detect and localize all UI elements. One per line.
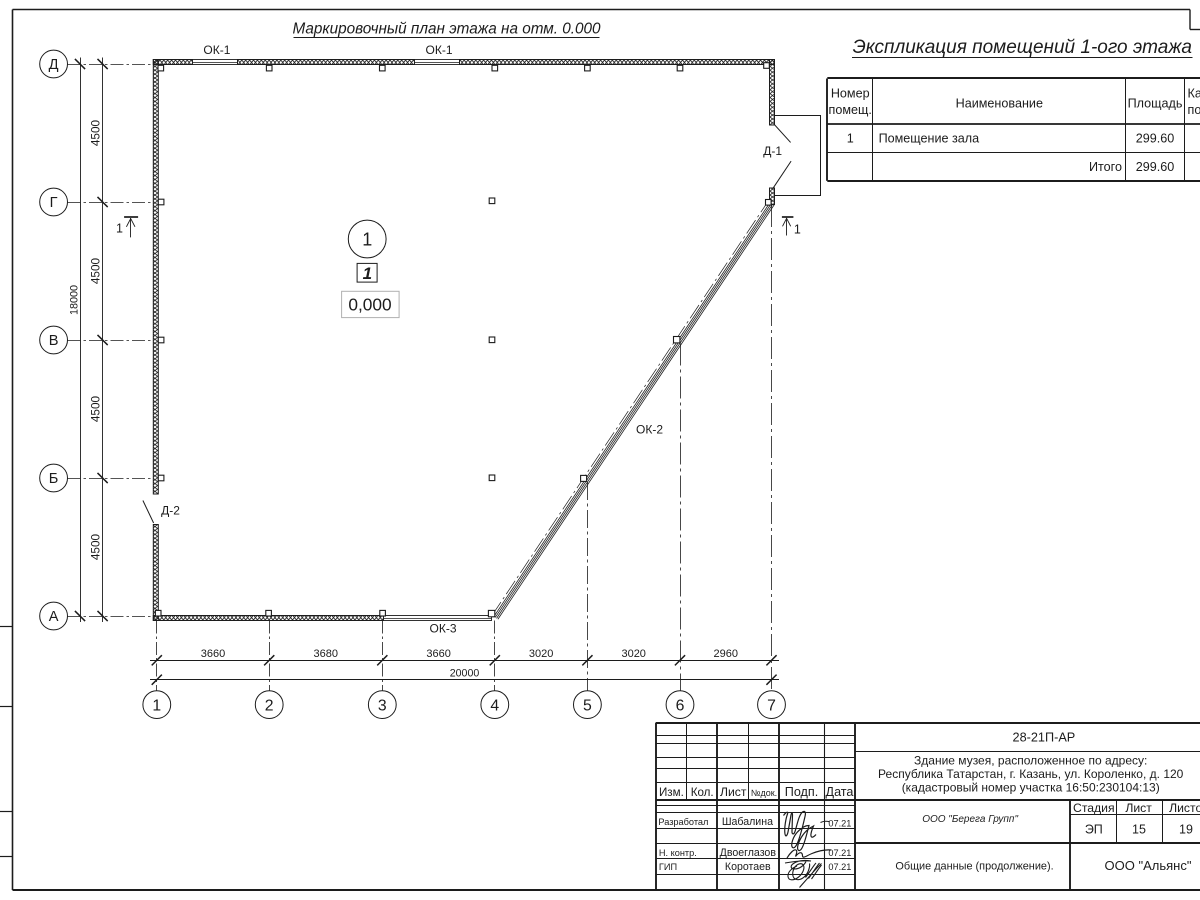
svg-text:Г: Г [50,195,58,211]
svg-text:3660: 3660 [201,648,225,660]
svg-text:1: 1 [794,222,801,236]
svg-text:1: 1 [116,221,123,235]
svg-text:4500: 4500 [88,119,102,146]
svg-text:299.60: 299.60 [1136,160,1175,174]
svg-text:07.21: 07.21 [828,862,851,872]
svg-text:Н. контр.: Н. контр. [659,848,697,858]
svg-text:3: 3 [378,697,387,714]
svg-text:3660: 3660 [426,648,450,660]
svg-text:4500: 4500 [88,395,102,422]
svg-text:ОК-3: ОК-3 [430,622,457,636]
svg-text:1: 1 [152,697,161,714]
svg-text:Подп.: Подп. [785,785,818,799]
svg-text:07.21: 07.21 [828,848,851,858]
svg-text:Помещение зала: Помещение зала [879,131,980,145]
svg-text:3680: 3680 [314,648,338,660]
svg-text:№док.: №док. [751,788,777,798]
svg-text:Общие данные (продолжение).: Общие данные (продолжение). [895,861,1053,873]
svg-text:15: 15 [1132,823,1146,837]
svg-text:Лист: Лист [720,785,747,799]
svg-text:Д-1: Д-1 [763,144,782,158]
svg-text:Д-2: Д-2 [161,504,180,518]
svg-text:ГИП: ГИП [659,862,677,872]
svg-text:ООО "Берега Групп": ООО "Берега Групп" [922,814,1018,825]
svg-text:7: 7 [767,697,776,714]
svg-text:Б: Б [49,471,59,487]
svg-text:Наименование: Наименование [956,96,1043,110]
svg-text:28-21П-АР: 28-21П-АР [1013,730,1076,744]
svg-text:Дата: Дата [826,785,854,799]
svg-text:Изм.: Изм. [659,786,684,799]
svg-text:19: 19 [1179,823,1193,837]
svg-text:3020: 3020 [529,648,553,660]
svg-text:ОК-2: ОК-2 [636,423,663,437]
svg-text:2960: 2960 [714,648,738,660]
svg-text:Листов: Листов [1169,801,1200,815]
svg-text:4500: 4500 [88,257,102,284]
svg-text:Лист: Лист [1125,801,1152,815]
svg-text:Шабалина: Шабалина [722,816,773,828]
svg-text:Экспликация помещений 1-ого эт: Экспликация помещений 1-ого этажа [853,37,1192,58]
svg-text:ООО "Альянс": ООО "Альянс" [1105,858,1192,873]
svg-text:Двоеглазов: Двоеглазов [720,847,777,859]
svg-text:299.60: 299.60 [1136,131,1175,145]
svg-text:6: 6 [676,697,685,714]
svg-text:Маркировочный план этажа на от: Маркировочный план этажа на отм. 0.000 [292,21,601,38]
svg-text:Республика Татарстан, г. Казан: Республика Татарстан, г. Казань, ул. Кор… [878,767,1184,781]
svg-text:3020: 3020 [621,648,645,660]
svg-text:1: 1 [363,264,372,283]
svg-text:помещ.: помещ. [829,103,872,117]
svg-text:Коротаев: Коротаев [725,861,771,873]
svg-text:Стадия: Стадия [1073,801,1115,815]
svg-text:Здание музея, расположенное по: Здание музея, расположенное по адресу: [914,754,1147,768]
svg-text:(кадастровый номер участка 16:: (кадастровый номер участка 16:50:230104:… [902,780,1160,794]
svg-text:1: 1 [362,229,372,249]
svg-text:18000: 18000 [69,285,81,315]
svg-text:07.21: 07.21 [828,818,851,828]
svg-text:0,000: 0,000 [348,295,391,315]
svg-text:20000: 20000 [450,667,480,679]
svg-text:Разработал: Разработал [658,817,708,827]
svg-text:Кол.: Кол. [691,786,714,799]
svg-text:4500: 4500 [88,533,102,560]
svg-text:2: 2 [265,697,274,714]
svg-text:4: 4 [490,697,499,714]
svg-text:ЭП: ЭП [1085,823,1103,837]
svg-text:помещения: помещения [1188,103,1200,117]
svg-text:Д: Д [49,57,59,73]
svg-text:1: 1 [847,131,854,145]
svg-text:ОК-1: ОК-1 [203,43,230,57]
svg-text:Категория: Категория [1188,87,1200,101]
svg-text:ОК-1: ОК-1 [426,43,453,57]
svg-text:Площадь: Площадь [1128,96,1183,110]
svg-text:Номер: Номер [831,87,870,101]
svg-text:В: В [49,333,59,349]
svg-text:5: 5 [583,697,592,714]
svg-text:Итого: Итого [1089,160,1122,174]
svg-text:А: А [49,609,59,625]
